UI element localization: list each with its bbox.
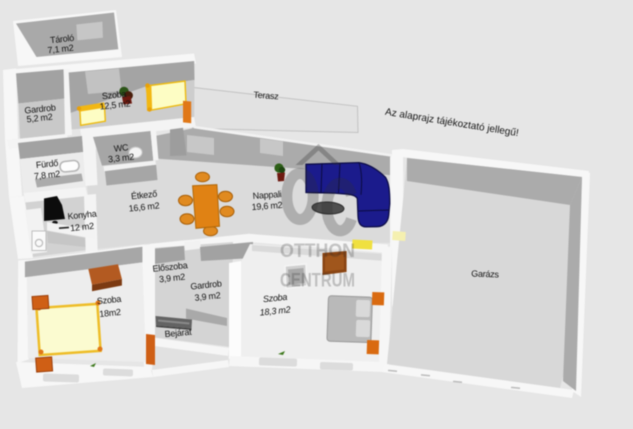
svg-text:CENTRUM: CENTRUM <box>280 270 355 292</box>
svg-text:OTTHON: OTTHON <box>280 240 355 262</box>
svg-text:Nappali: Nappali <box>252 189 282 201</box>
svg-text:Terasz: Terasz <box>253 90 279 102</box>
svg-text:Garázs: Garázs <box>471 269 500 280</box>
